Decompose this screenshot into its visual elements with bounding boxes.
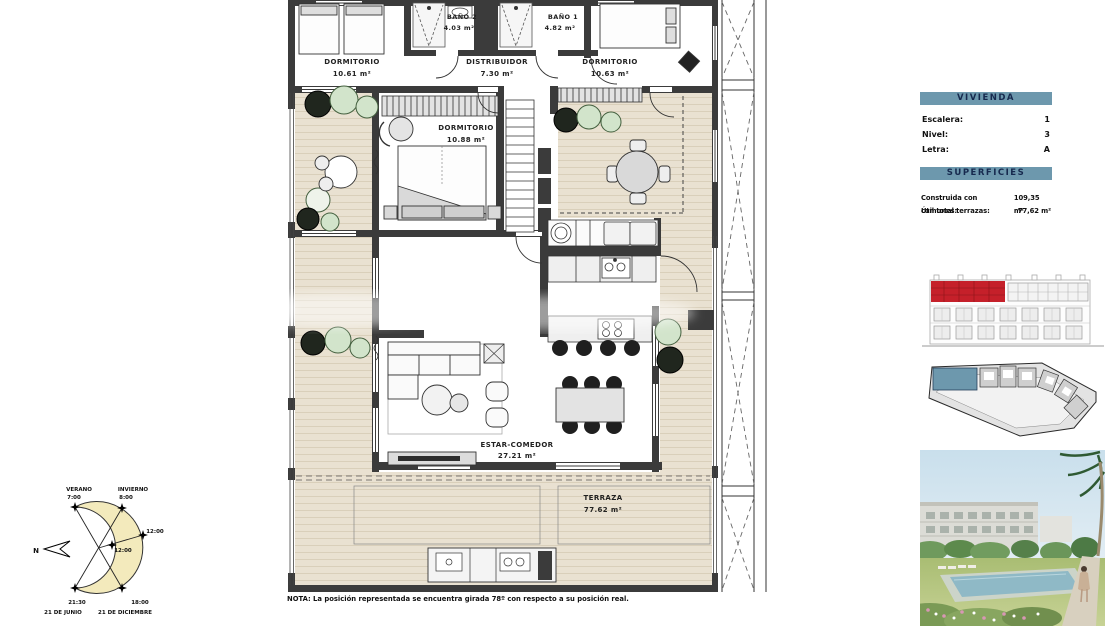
verano-sunrise: 7:00	[67, 495, 81, 501]
letra-label: Letra:	[922, 142, 949, 157]
room-label-distribuidor: DISTRIBUIDOR	[466, 58, 528, 66]
letra-value: A	[1044, 142, 1050, 157]
room-area-dormitorio-izq: 10.61 m²	[333, 70, 371, 78]
dining-set	[556, 376, 624, 434]
vivienda-row-escalera: Escalera: 1	[920, 112, 1052, 127]
vivienda-row-nivel: Nivel: 3	[920, 127, 1052, 142]
invierno-date: 21 DE DICIEMBRE	[98, 610, 152, 616]
brochure-page: DORMITORIO 10.61 m² BAÑO 2 4.03 m² DISTR…	[0, 0, 1110, 626]
escalera-value: 1	[1044, 112, 1050, 127]
sun-crescent	[75, 502, 143, 594]
room-label-bano1: BAÑO 1	[548, 12, 578, 21]
util-label: Útil total terrazas:	[921, 205, 990, 218]
verano-label: VERANO	[66, 487, 92, 493]
room-label-estar: ESTAR-COMEDOR	[481, 441, 554, 449]
noon-verano: 12:00	[114, 548, 132, 554]
site-plan	[929, 363, 1096, 436]
north-compass-icon	[44, 541, 70, 557]
room-area-bano1: 4.82 m²	[545, 24, 576, 32]
room-label-dormitorio-der: DORMITORIO	[582, 58, 637, 66]
util-value: 77,62 m²	[1018, 205, 1051, 218]
room-label-bano2: BAÑO 2	[447, 12, 477, 21]
invierno-sunrise: 8:00	[119, 495, 133, 501]
nivel-value: 3	[1044, 127, 1050, 142]
superficies-title: SUPERFICIES	[920, 167, 1052, 180]
sun-path-diagram: N VERANO 7:00 INVIERNO 8:00 12:00 12:00 …	[33, 487, 164, 616]
render-photo	[898, 450, 1105, 626]
construida-value: 109,35 m²	[1014, 192, 1051, 205]
room-area-dormitorio-ppal: 10.88 m²	[447, 136, 485, 144]
facade-elevation	[922, 275, 1104, 346]
escalera-label: Escalera:	[922, 112, 963, 127]
room-label-terraza: TERRAZA	[583, 494, 622, 502]
room-area-terraza: 77.62 m²	[584, 506, 622, 514]
corridor-closet	[506, 100, 551, 232]
north-label: N	[33, 547, 39, 555]
invierno-label: INVIERNO	[118, 487, 149, 493]
room-area-estar: 27.21 m²	[498, 452, 536, 460]
room-area-dormitorio-der: 10.63 m²	[591, 70, 629, 78]
master-bed	[379, 117, 501, 220]
vivienda-row-letra: Letra: A	[920, 142, 1052, 157]
shower-2	[500, 3, 532, 47]
superficies-panel: SUPERFICIES Construida con comunes: 109,…	[920, 167, 1052, 218]
nivel-label: Nivel:	[922, 127, 948, 142]
superficies-row-util: Útil total terrazas: 77,62 m²	[920, 205, 1052, 218]
room-label-dormitorio-ppal: DORMITORIO	[438, 124, 493, 132]
shower-1	[413, 3, 445, 47]
verano-date: 21 DE JUNIO	[44, 610, 82, 616]
orientation-note: NOTA: La posición representada se encuen…	[287, 595, 629, 603]
construida-label: Construida con comunes:	[921, 192, 1014, 205]
bedroom-left-beds	[299, 4, 384, 54]
verano-sunset: 21:30	[68, 600, 86, 606]
section-strip	[722, 0, 766, 592]
room-area-distribuidor: 7.30 m²	[481, 70, 514, 78]
room-area-bano2: 4.03 m²	[444, 24, 475, 32]
vivienda-panel: VIVIENDA Escalera: 1 Nivel: 3 Letra: A	[920, 92, 1052, 157]
vivienda-title: VIVIENDA	[920, 92, 1052, 105]
facade-unit-highlight	[931, 281, 1005, 302]
room-label-dormitorio-izq: DORMITORIO	[324, 58, 379, 66]
siteplan-unit-highlight	[933, 368, 977, 390]
invierno-sunset: 18:00	[131, 600, 149, 606]
noon-invierno: 12:00	[146, 529, 164, 535]
superficies-row-construida: Construida con comunes: 109,35 m²	[920, 192, 1052, 205]
watermark	[205, 293, 695, 330]
